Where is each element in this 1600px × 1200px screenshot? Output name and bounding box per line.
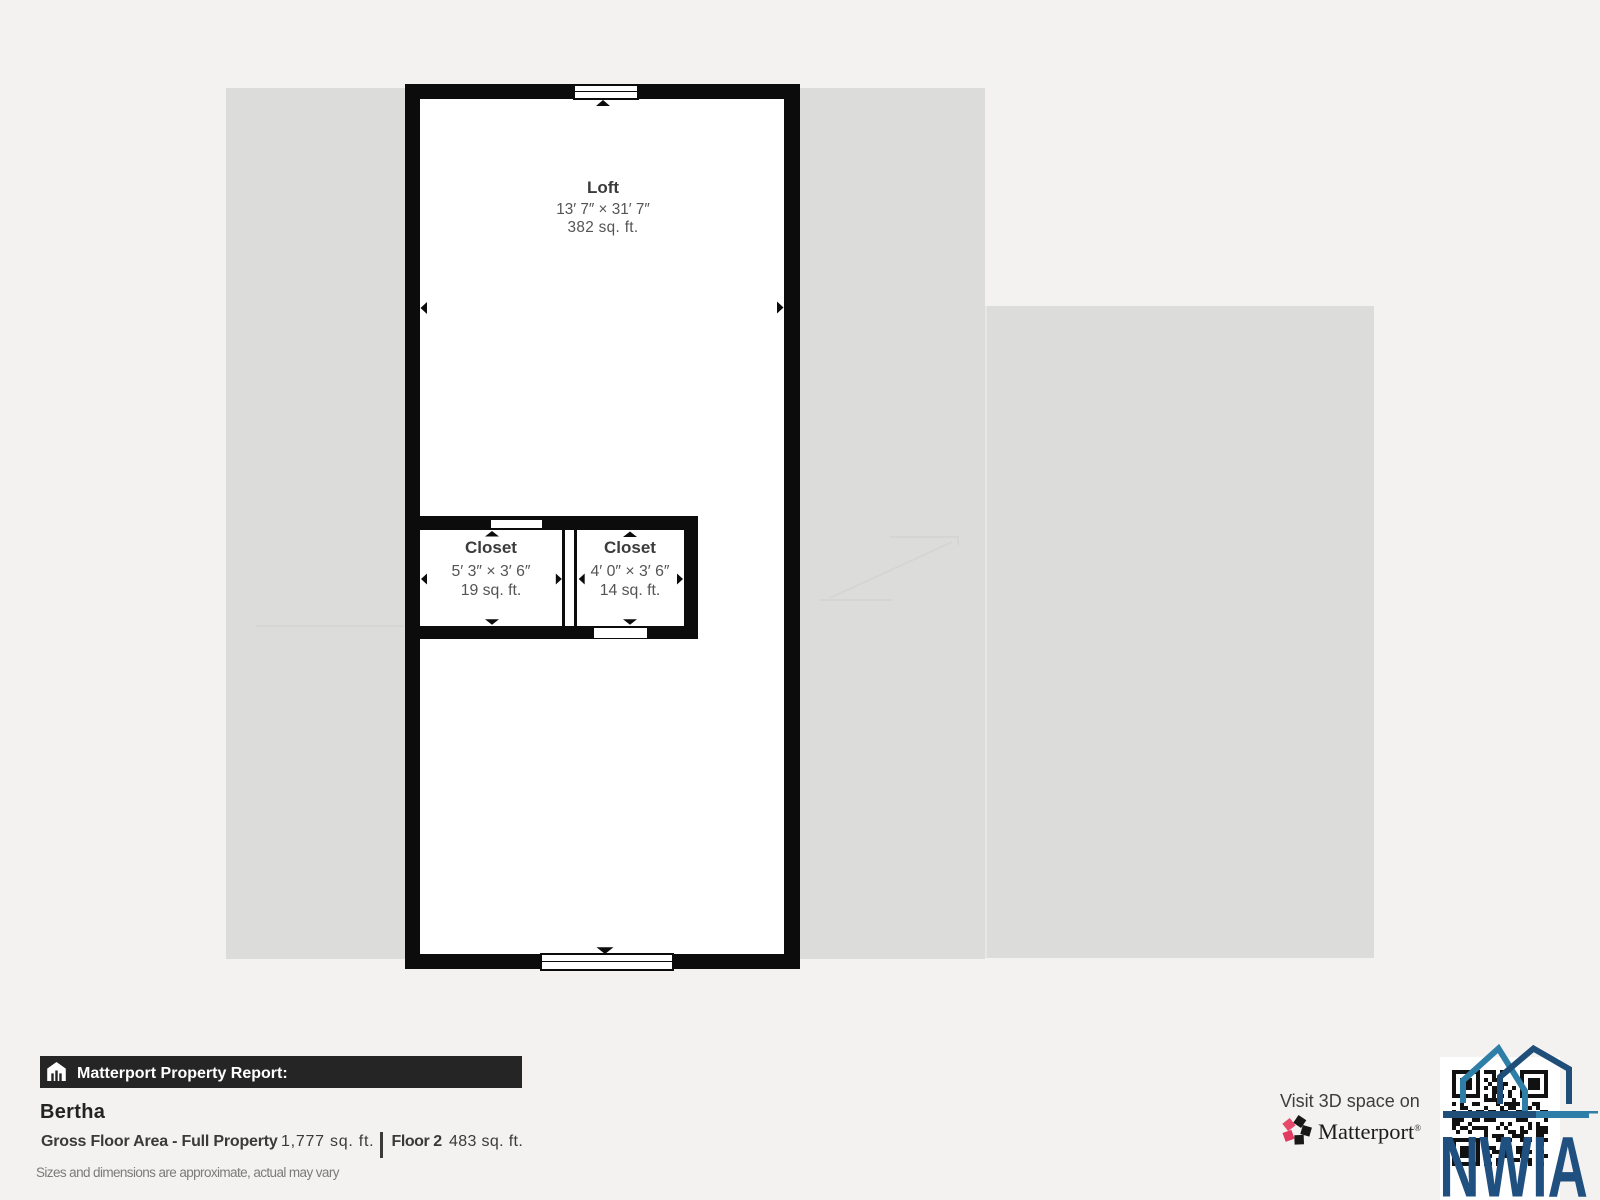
svg-text:NWIA: NWIA xyxy=(1439,1119,1588,1200)
